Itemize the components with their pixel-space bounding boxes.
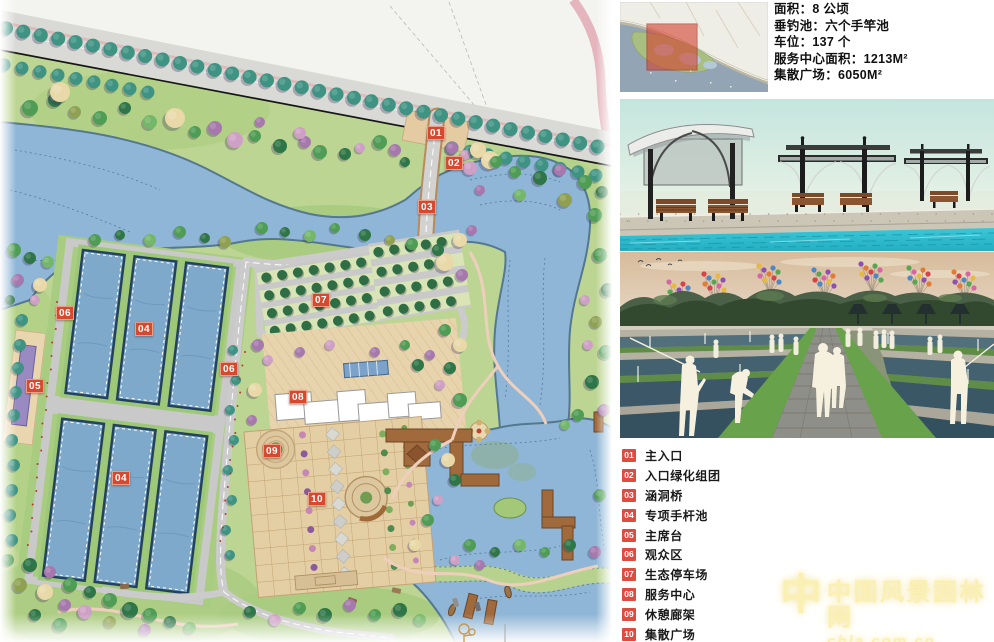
plan-marker-08: 08: [289, 390, 307, 404]
legend-item-02: 02入口绿化组团: [622, 469, 721, 483]
legend-item-03: 03涵洞桥: [622, 489, 721, 503]
watermark-title: 中国风景园林网: [827, 580, 994, 630]
plan-marker-02: 02: [445, 156, 463, 170]
plan-marker-09: 09: [263, 444, 281, 458]
legend-label: 专项手杆池: [645, 507, 708, 524]
site-plan-drawing: [0, 0, 612, 642]
legend-label: 入口绿化组团: [645, 467, 721, 484]
render-shelter: [620, 99, 994, 256]
plan-marker-05: 05: [26, 379, 44, 393]
legend-badge: 03: [622, 489, 636, 502]
plan-marker-06b: 06: [220, 362, 238, 376]
location-map: [620, 2, 768, 97]
render-perspective: [620, 252, 994, 443]
legend-badge: 08: [622, 588, 636, 601]
legend-label: 涵洞桥: [645, 487, 683, 504]
legend-label: 生态停车场: [645, 566, 708, 583]
legend-item-01: 01主入口: [622, 449, 721, 463]
legend-item-04: 04专项手杆池: [622, 508, 721, 522]
plan-marker-01: 01: [427, 126, 445, 140]
project-stats: 面积：8 公顷 垂钓池：六个手竿池 车位：137 个 服务中心面积：1213M²…: [774, 1, 908, 84]
plan-marker-10: 10: [308, 492, 326, 506]
legend-label: 集散广场: [645, 626, 695, 642]
legend-item-08: 08服务中心: [622, 588, 721, 602]
legend-label: 服务中心: [645, 586, 695, 603]
stat-parking: 车位：137 个: [774, 34, 908, 51]
stat-area: 面积：8 公顷: [774, 1, 908, 18]
legend-badge: 02: [622, 469, 636, 482]
site-plan: 01 02 03 04 04 05 06 06 07 08 09 10: [0, 0, 612, 642]
plan-marker-03: 03: [418, 200, 436, 214]
design-board: 01 02 03 04 04 05 06 06 07 08 09 10: [0, 0, 994, 642]
plan-marker-07: 07: [312, 293, 330, 307]
legend-item-10: 10集散广场: [622, 627, 721, 641]
source-logo: [450, 622, 540, 642]
legend-item-07: 07生态停车场: [622, 568, 721, 582]
legend-label: 主席台: [645, 527, 683, 544]
stat-plaza: 集散广场：6050M²: [774, 67, 908, 84]
legend-label: 观众区: [645, 546, 683, 563]
legend-item-09: 09休憩廊架: [622, 607, 721, 621]
legend-badge: 01: [622, 449, 636, 462]
stat-ponds: 垂钓池：六个手竿池: [774, 18, 908, 35]
legend-badge: 06: [622, 548, 636, 561]
legend-badge: 05: [622, 529, 636, 542]
watermark-logo-icon: 中: [780, 570, 822, 620]
legend-item-06: 06观众区: [622, 548, 721, 562]
plan-marker-06a: 06: [56, 306, 74, 320]
legend-badge: 09: [622, 608, 636, 621]
legend-item-05: 05主席台: [622, 528, 721, 542]
plan-marker-04b: 04: [112, 471, 130, 485]
site-highlight: [647, 24, 697, 70]
watermark: 中 中国风景园林网 chla.com.cn: [780, 570, 994, 642]
legend-badge: 07: [622, 568, 636, 581]
watermark-url: chla.com.cn: [827, 633, 994, 642]
legend-label: 主入口: [645, 447, 683, 464]
legend-badge: 10: [622, 628, 636, 641]
legend: 01主入口 02入口绿化组团 03涵洞桥 04专项手杆池 05主席台 06观众区…: [622, 449, 721, 642]
tree-icon: [459, 624, 475, 642]
plan-marker-04a: 04: [135, 322, 153, 336]
legend-label: 休憩廊架: [645, 606, 695, 623]
legend-badge: 04: [622, 509, 636, 522]
stat-service-center: 服务中心面积：1213M²: [774, 51, 908, 68]
